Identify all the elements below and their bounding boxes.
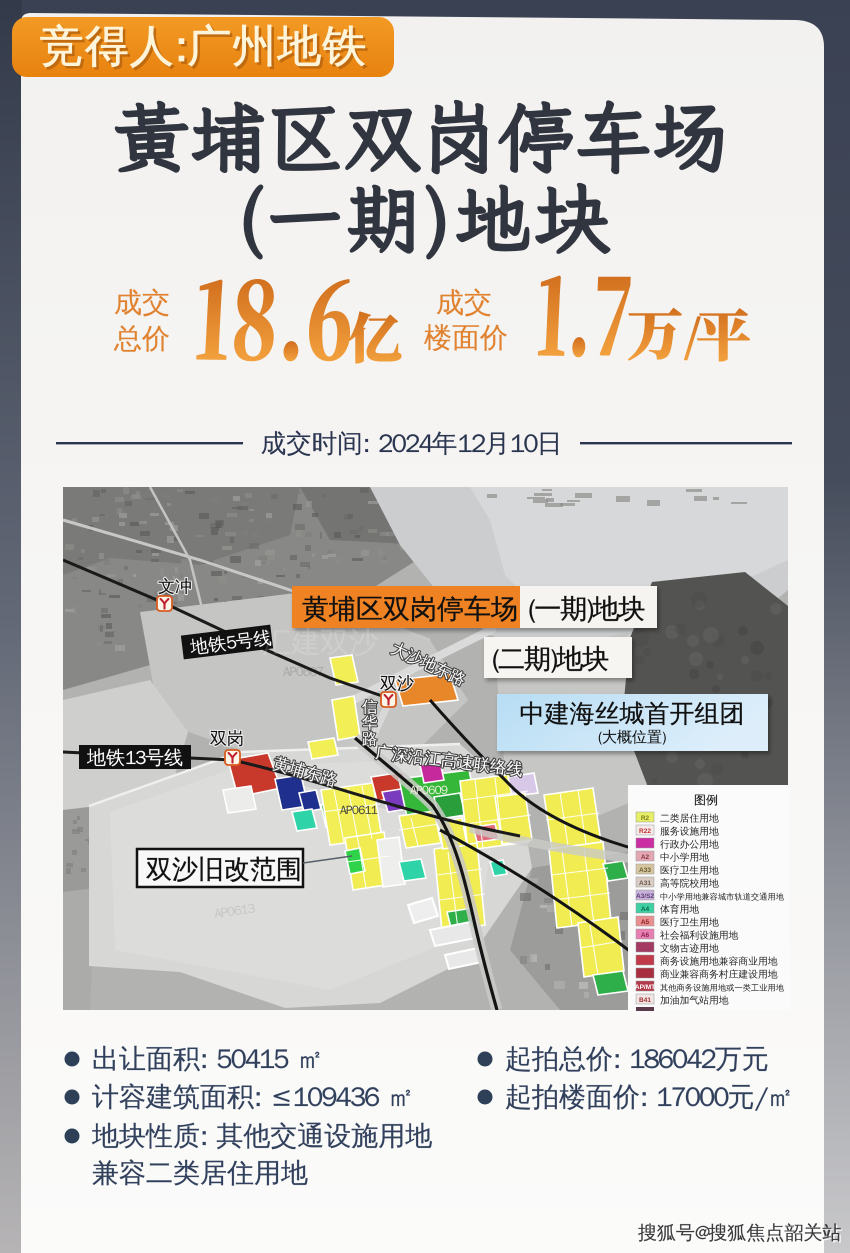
svg-text:R22: R22 <box>639 828 651 835</box>
svg-text:A5: A5 <box>641 919 650 926</box>
svg-text:A3/S2: A3/S2 <box>636 893 654 900</box>
svg-text:R2: R2 <box>641 815 650 822</box>
svg-text:AP/MT: AP/MT <box>635 984 655 991</box>
svg-text:A33: A33 <box>639 867 651 874</box>
svg-text:A6: A6 <box>641 932 650 939</box>
svg-text:A4: A4 <box>641 906 650 913</box>
svg-text:B41: B41 <box>639 997 651 1004</box>
svg-text:A31: A31 <box>639 880 651 887</box>
svg-text:A2: A2 <box>641 854 650 861</box>
